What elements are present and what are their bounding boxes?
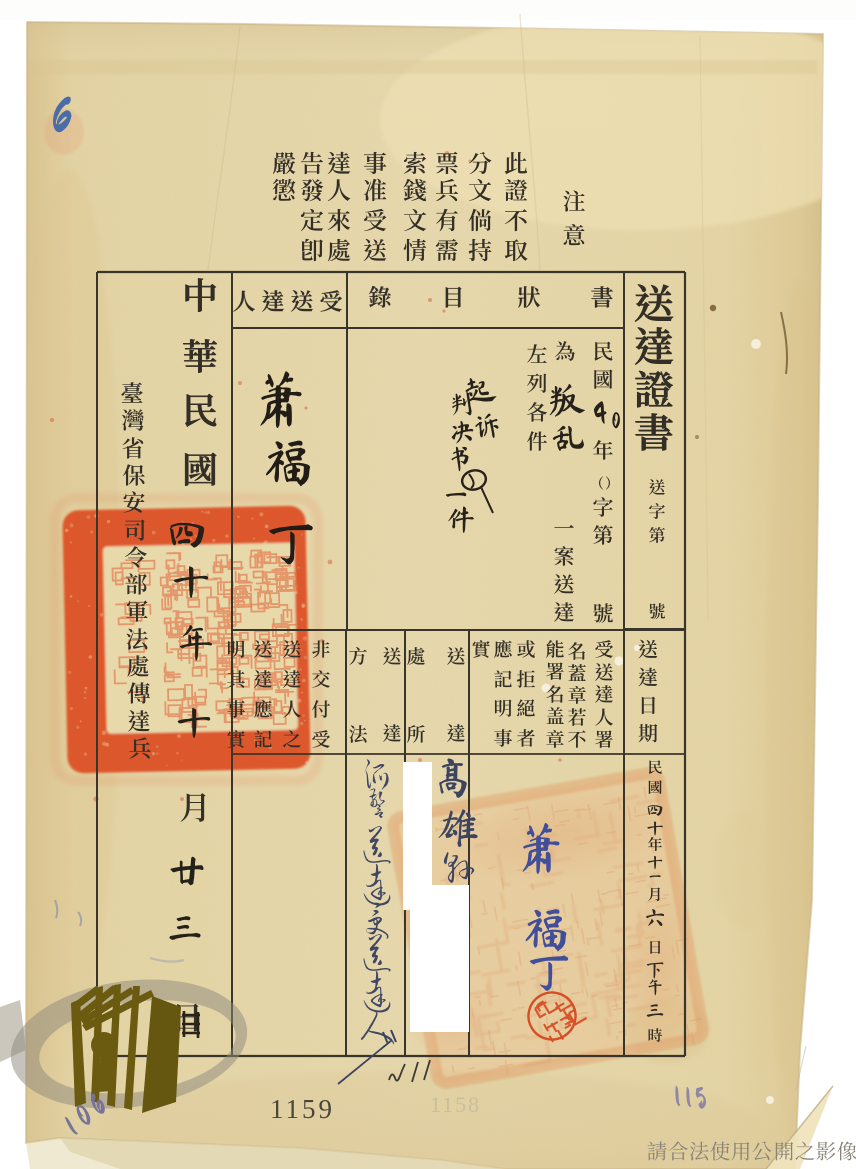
svg-text:1159: 1159 (270, 1094, 335, 1124)
svg-text:1158: 1158 (430, 1092, 481, 1117)
